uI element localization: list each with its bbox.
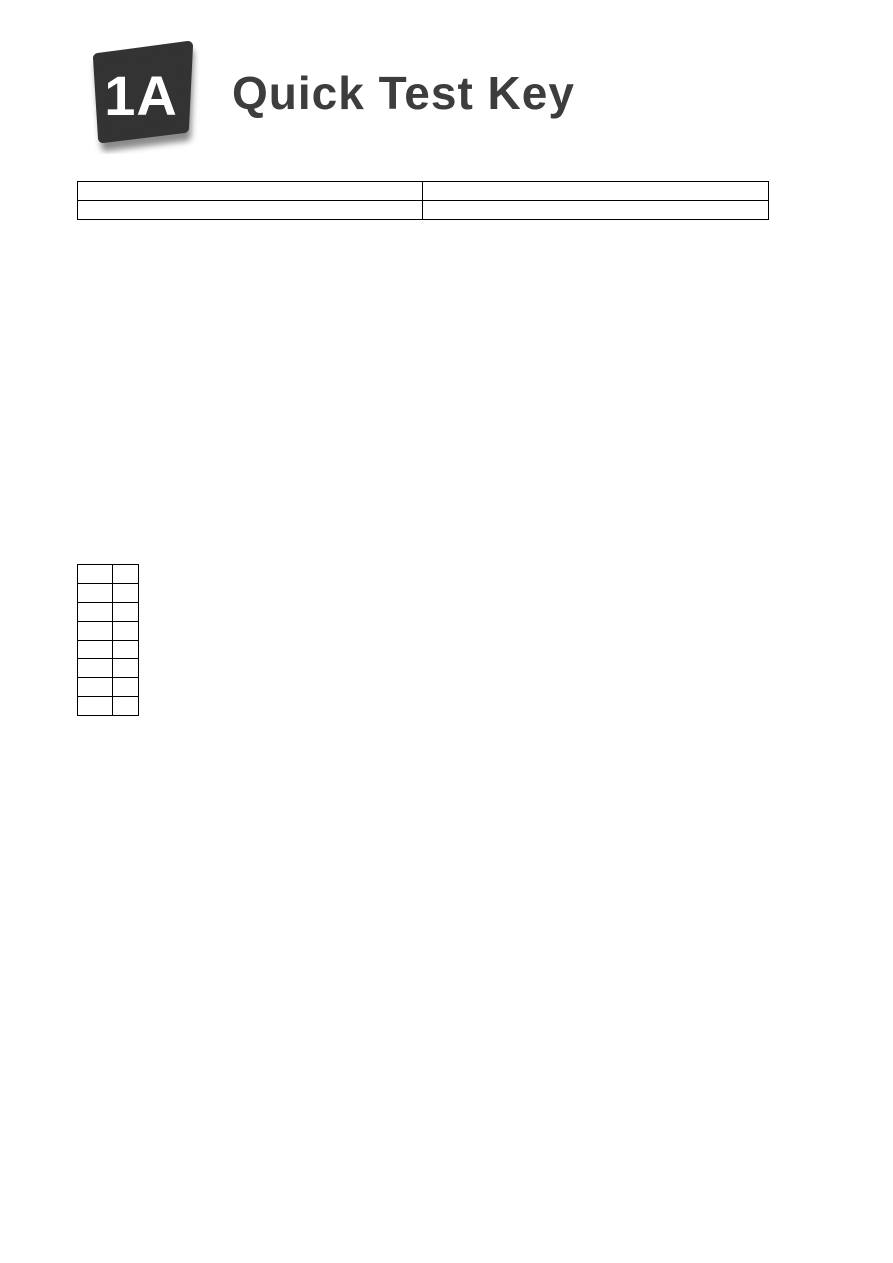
answer-key-table — [77, 564, 139, 716]
answer-key-cell — [78, 697, 113, 716]
unit-badge-label: 1A — [88, 47, 194, 143]
answer-key-row — [78, 602, 139, 621]
answer-key-row — [78, 659, 139, 678]
answer-key-cell — [78, 640, 113, 659]
score-table-cell — [423, 182, 769, 201]
answer-key-cell — [113, 697, 139, 716]
answer-key-row — [78, 583, 139, 602]
answer-key-cell — [113, 565, 139, 584]
unit-badge: 1A — [88, 38, 202, 154]
answer-key-cell — [78, 602, 113, 621]
score-table — [77, 181, 769, 220]
answer-key-row — [78, 565, 139, 584]
page-header: 1A Quick Test Key — [88, 38, 575, 154]
page-title: Quick Test Key — [232, 66, 575, 120]
answer-key-row — [78, 640, 139, 659]
answer-key-cell — [78, 583, 113, 602]
answer-key-cell — [113, 659, 139, 678]
answer-key-cell — [113, 640, 139, 659]
answer-key-row — [78, 697, 139, 716]
answer-key-cell — [78, 621, 113, 640]
answer-key-cell — [113, 621, 139, 640]
answer-key-cell — [78, 678, 113, 697]
score-table-row — [78, 182, 769, 201]
answer-key-row — [78, 678, 139, 697]
score-table-cell — [78, 201, 423, 220]
score-table-row — [78, 201, 769, 220]
document-page: 1A Quick Test Key — [0, 0, 893, 1263]
answer-key-cell — [78, 659, 113, 678]
answer-key-cell — [78, 565, 113, 584]
answer-key-cell — [113, 678, 139, 697]
answer-key-row — [78, 621, 139, 640]
score-table-cell — [78, 182, 423, 201]
score-table-cell — [423, 201, 769, 220]
answer-key-cell — [113, 602, 139, 621]
answer-key-cell — [113, 583, 139, 602]
